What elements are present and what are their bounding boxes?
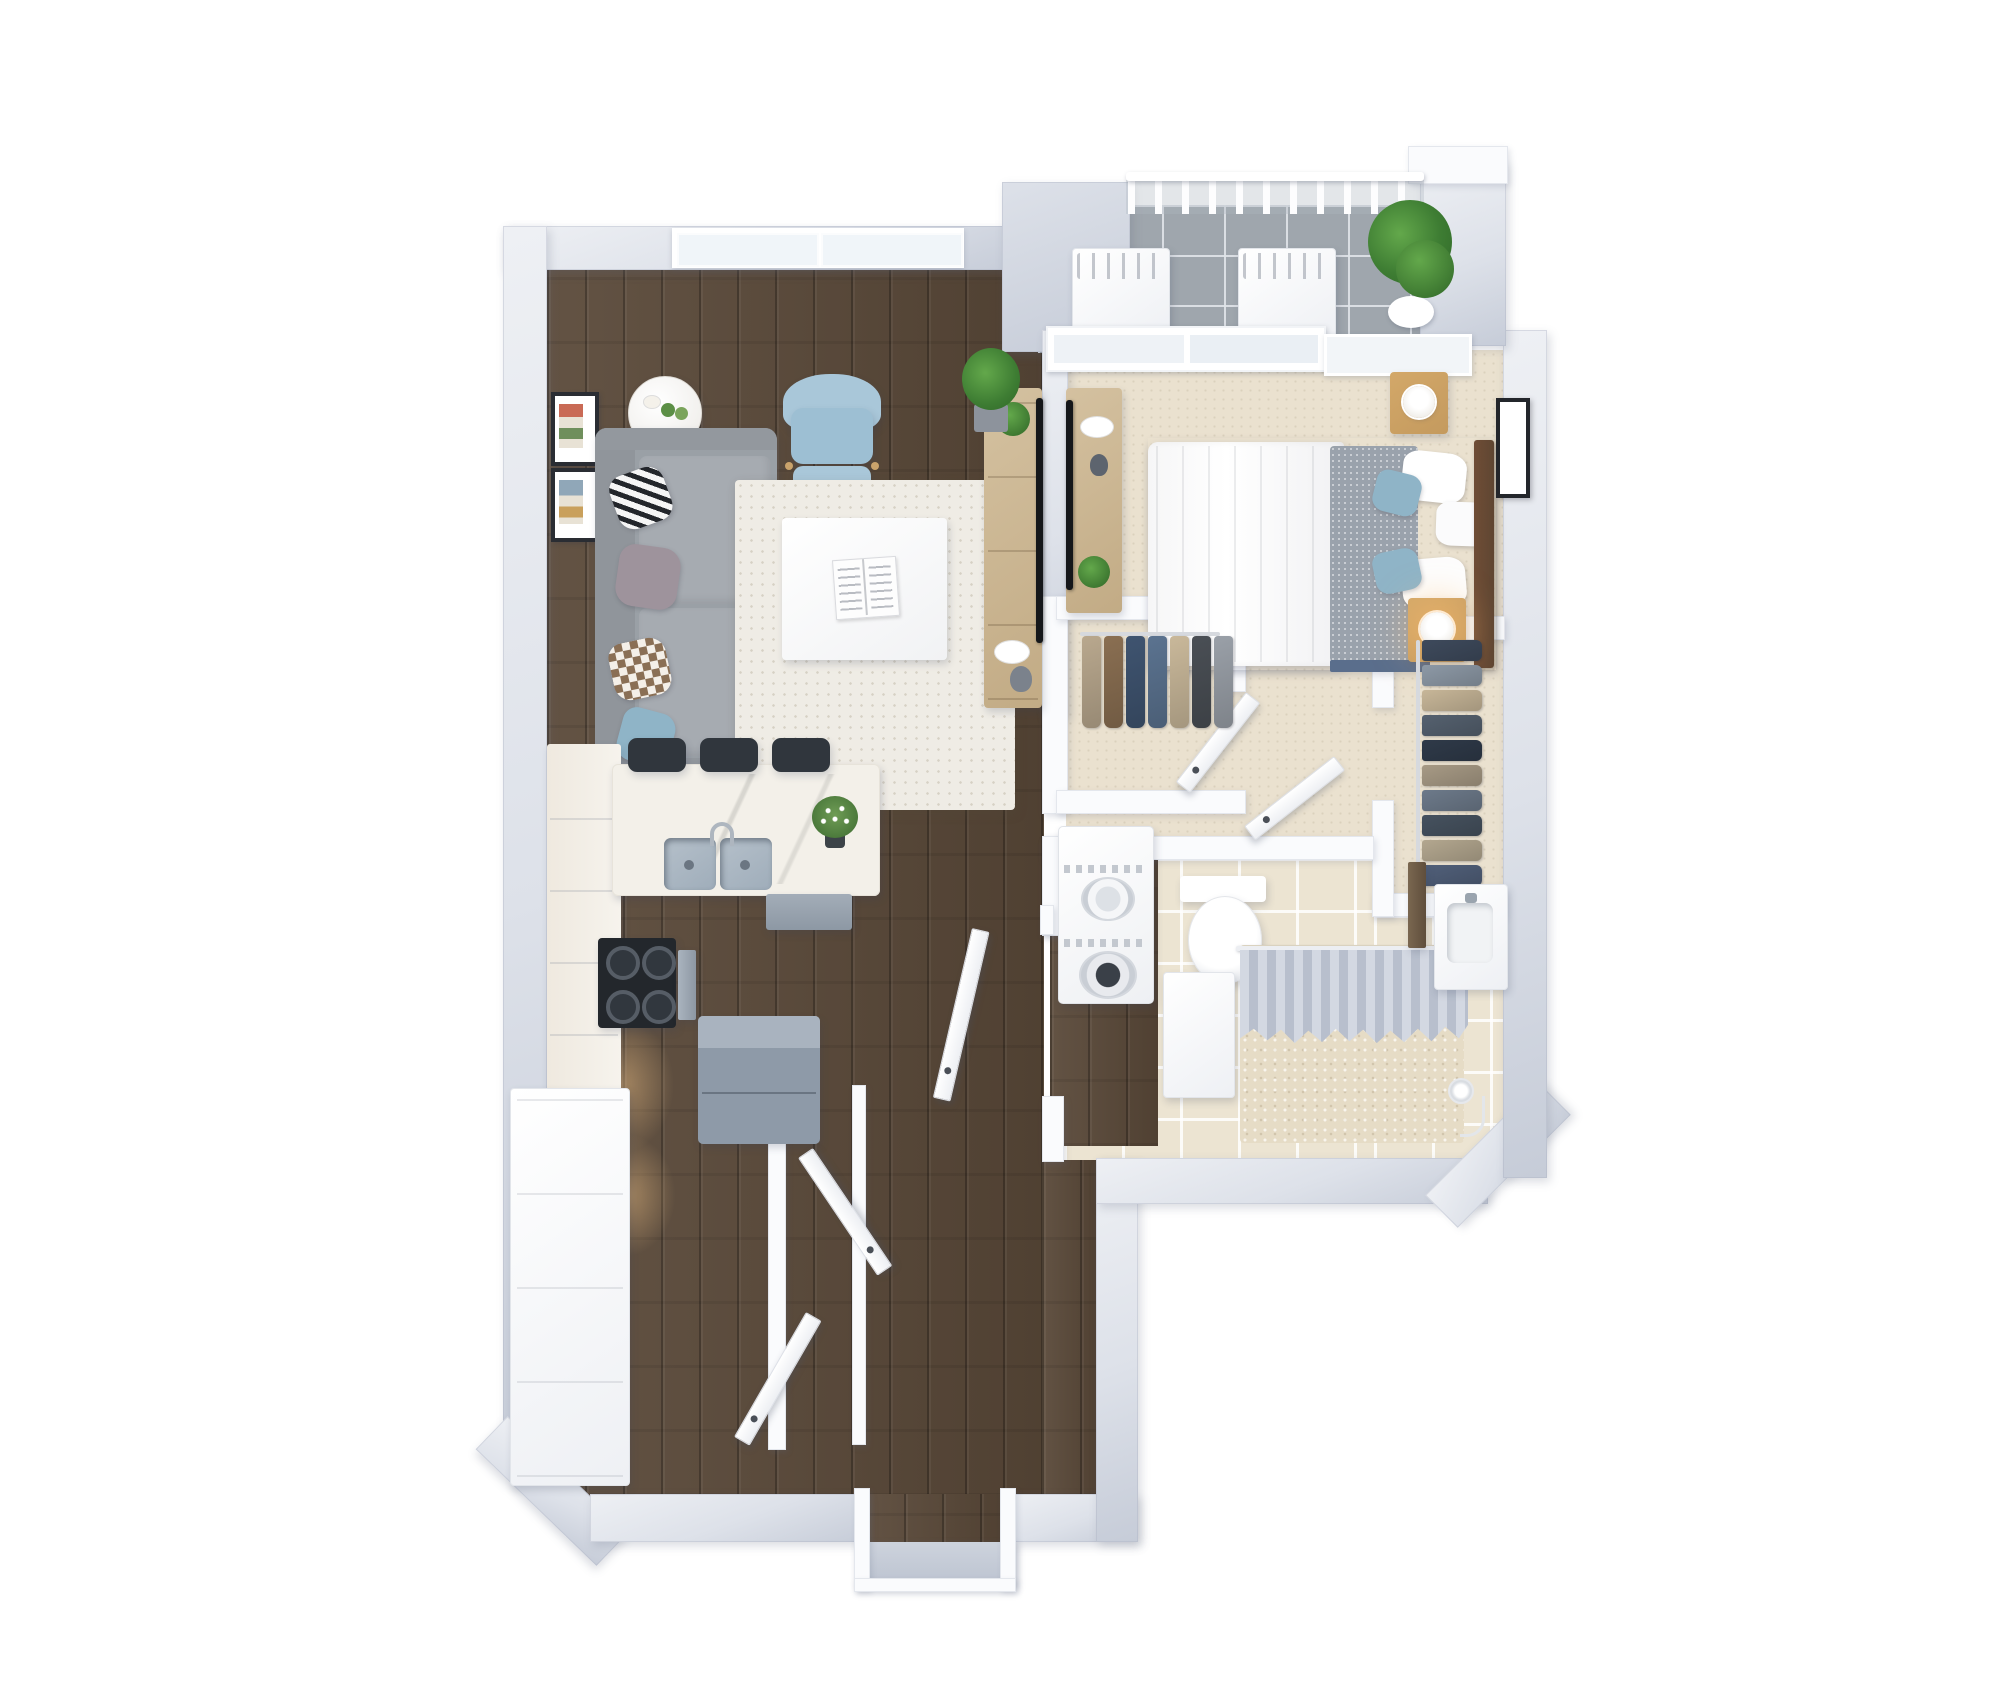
plant-foliage-2 (1396, 240, 1454, 298)
bathroom-vanity-sink (1434, 884, 1508, 990)
bathroom-tall-cabinet (1408, 862, 1426, 948)
vanity-faucet (1465, 893, 1477, 903)
cabinet-lines (550, 750, 618, 1108)
vanity-basin (1447, 903, 1493, 963)
entry-door-sill (854, 1578, 1016, 1592)
hanging-garment (1422, 765, 1482, 786)
door-handle (1191, 765, 1201, 775)
hanging-garment (1082, 636, 1101, 728)
hanging-garment (1422, 690, 1482, 711)
door-handle (749, 1414, 759, 1424)
washer-door-top (1081, 877, 1135, 921)
burner (606, 946, 640, 980)
entry-door-jamb-left (854, 1488, 870, 1590)
closet2-rod (1416, 640, 1420, 890)
hanging-garment (1422, 665, 1482, 686)
bathroom-west-wall-lower (1042, 1096, 1064, 1162)
bed-headboard (1474, 440, 1494, 668)
entry-door-jamb-right (1000, 1488, 1016, 1590)
hanging-garment (1422, 740, 1482, 761)
dryer-control-strip (1064, 939, 1148, 947)
closet1-south-wall (1056, 790, 1246, 814)
wall-art-frame-1 (551, 392, 599, 466)
bathroom-door-jamb (1040, 905, 1054, 935)
armchair-leg (871, 462, 879, 470)
bedroom-wall-art-frame (1496, 398, 1530, 498)
burner (642, 990, 676, 1024)
sliding-door-pane-left (1052, 333, 1186, 365)
hallway-door-frame-strip (852, 1085, 866, 1445)
tv-bedroom (1066, 400, 1073, 590)
sink-drain (684, 860, 694, 870)
pantry-cabinet (510, 1088, 630, 1486)
bench-back-slats (1077, 253, 1163, 279)
hanging-garment (1422, 715, 1482, 736)
washer-dryer-stack (1058, 826, 1154, 1004)
bar-stool-3 (772, 738, 830, 772)
bedroom-sliding-glass-doors (1046, 326, 1326, 372)
floor-plan-scene (0, 0, 2000, 1700)
gas-cooktop (598, 938, 676, 1028)
tv-console-bedroom (1066, 388, 1122, 613)
console-plate (994, 640, 1030, 664)
bar-stool-2 (700, 738, 758, 772)
bench-back-slats (1243, 253, 1329, 279)
fridge-door-line (702, 1092, 816, 1094)
railing-top-bar (1126, 172, 1424, 181)
bedroom-fixed-glass-pane (1324, 334, 1472, 376)
balcony-potted-plant (1362, 192, 1458, 332)
art-content (559, 480, 583, 524)
burner (642, 946, 676, 980)
book-text-lines (868, 563, 893, 608)
door-handle (1261, 815, 1271, 825)
table-decor-plant-1 (661, 403, 675, 417)
handheld-shower (1446, 1076, 1490, 1140)
hanging-garment (1422, 640, 1482, 661)
oven-front (678, 950, 696, 1020)
washer-control-strip (1064, 865, 1148, 873)
duvet-folds (1156, 446, 1336, 662)
lamp-north (1403, 386, 1435, 418)
nightstand-north (1390, 372, 1448, 434)
hanging-garment (1126, 636, 1145, 728)
dishwasher (766, 894, 852, 930)
armchair-leg (785, 462, 793, 470)
sink-faucet (710, 822, 734, 846)
plant-foliage (962, 348, 1020, 410)
hanging-garment (1148, 636, 1167, 728)
burner (606, 990, 640, 1024)
book-text-lines (837, 565, 862, 610)
bar-stool-1 (628, 738, 686, 772)
island-flower-vase (810, 796, 860, 850)
tv-console-living (984, 388, 1042, 708)
hanging-garment (1422, 840, 1482, 861)
closet1-hanging-clothes (1082, 636, 1232, 732)
console-vase (1010, 666, 1032, 692)
closet2-west-wall-bottom (1372, 800, 1394, 917)
wall-art-frame-2 (551, 468, 599, 542)
kitchen-counter-left (547, 744, 621, 1114)
console-plate (1080, 416, 1114, 438)
door-handle (944, 1067, 952, 1075)
window-pane-left (677, 233, 819, 267)
hanging-garment (1422, 865, 1482, 886)
bathroom-storage-cabinet (1163, 972, 1235, 1098)
console-vase (1090, 454, 1108, 476)
closet1-west-wall (1042, 596, 1068, 814)
book-spine (862, 559, 868, 615)
white-flowers (812, 796, 858, 838)
hallway-right-exterior-wall (1096, 1160, 1138, 1542)
sliding-door-pane-right (1188, 333, 1320, 365)
tv-living (1036, 398, 1043, 643)
fridge-top-panel (698, 1016, 820, 1048)
shower-hose (1460, 1096, 1485, 1137)
window-pane-right (821, 233, 963, 267)
door-handle (865, 1245, 875, 1255)
hanging-garment (1104, 636, 1123, 728)
table-decor-plate (643, 395, 661, 409)
double-sink (664, 834, 776, 894)
washer-door-bottom (1079, 951, 1137, 999)
hanging-garment (1422, 815, 1482, 836)
sofa-arm-top (595, 428, 777, 450)
hallway-wood-floor (1042, 1158, 1098, 1496)
plant-pot (1388, 296, 1434, 328)
sink-drain (740, 860, 750, 870)
refrigerator (698, 1016, 820, 1144)
console-plant (1078, 556, 1110, 588)
hanging-garment (1170, 636, 1189, 728)
bottom-wall-left-of-entry (590, 1494, 866, 1542)
sofa-pillow-mauve (613, 542, 683, 612)
coffee-table (782, 518, 947, 660)
cabinet-lines (517, 1097, 623, 1477)
living-room-window (672, 228, 964, 268)
hanging-garment (1192, 636, 1211, 728)
table-decor-plant-2 (675, 407, 688, 420)
open-book (832, 556, 900, 620)
art-content (559, 404, 583, 448)
armchair-seat (791, 408, 873, 464)
living-floor-plant (958, 348, 1024, 434)
hanging-garment (1214, 636, 1233, 728)
hanging-garment (1422, 790, 1482, 811)
closet2-hanging-clothes (1422, 640, 1486, 892)
